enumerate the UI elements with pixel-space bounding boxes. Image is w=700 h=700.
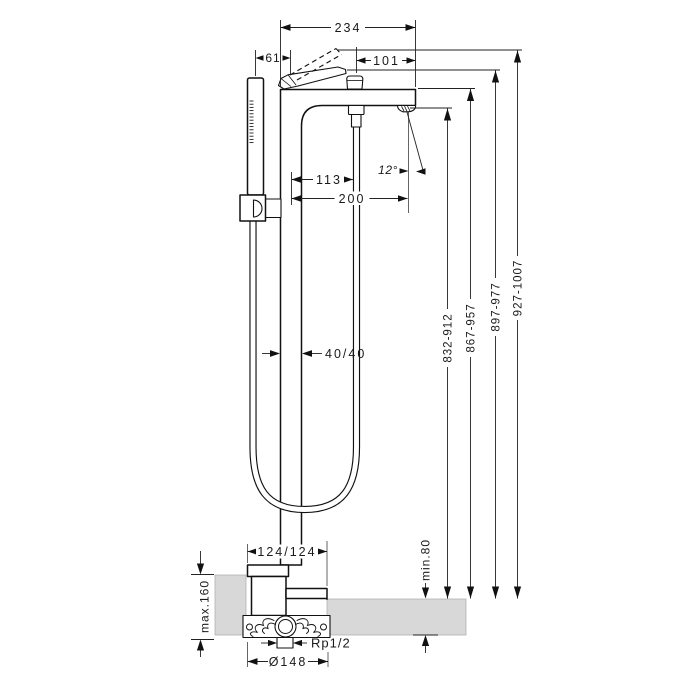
dim-handshower-offset: 61 bbox=[256, 50, 291, 76]
dim-label-927-1007: 927-1007 bbox=[513, 260, 525, 317]
spout-outlet bbox=[398, 106, 416, 112]
floor-section-left bbox=[215, 575, 246, 635]
dim-riser-to-spout: 200 bbox=[292, 192, 408, 206]
floor-section-right bbox=[327, 599, 466, 635]
dim-label-min-80: min.80 bbox=[419, 539, 433, 581]
dim-floor-max: max.160 bbox=[191, 551, 214, 657]
dim-label-234: 234 bbox=[335, 21, 362, 35]
dim-label-867-957: 867-957 bbox=[466, 303, 478, 352]
drawing-canvas: 234 101 61 113 200 bbox=[0, 0, 700, 700]
dim-label-max-160: max.160 bbox=[198, 580, 212, 633]
technical-drawing-page: 234 101 61 113 200 bbox=[0, 0, 700, 700]
hose-connection-nipple bbox=[349, 106, 365, 128]
diverter-knob bbox=[347, 76, 363, 89]
dim-label-40-40: 40/40 bbox=[325, 347, 366, 361]
dim-floor-min: min.80 bbox=[413, 539, 438, 653]
dim-label-832-912: 832-912 bbox=[443, 313, 455, 362]
dim-label-61: 61 bbox=[265, 51, 280, 65]
dim-label-101: 101 bbox=[373, 54, 400, 68]
dim-label-rp12: Rp1/2 bbox=[311, 636, 351, 651]
dim-column-profile: 40/40 bbox=[262, 347, 366, 361]
dim-label-124-124: 124/124 bbox=[257, 545, 316, 559]
handshower-holder bbox=[240, 195, 281, 221]
thread-socket bbox=[277, 638, 293, 649]
dim-label-12deg: 12° bbox=[378, 163, 398, 177]
handshower-baton bbox=[248, 78, 264, 195]
dim-label-113: 113 bbox=[316, 173, 342, 187]
mounting-flange bbox=[243, 616, 330, 638]
dim-label-200: 200 bbox=[339, 192, 366, 206]
lever-handle bbox=[279, 67, 347, 89]
dim-height-spout: 832-912 bbox=[410, 108, 455, 599]
dim-spout-offset: 101 bbox=[357, 47, 416, 73]
dim-height-lever: 897-977 bbox=[347, 70, 503, 599]
dim-label-d148: Ø148 bbox=[269, 655, 308, 669]
dim-label-897-977: 897-977 bbox=[491, 282, 503, 331]
